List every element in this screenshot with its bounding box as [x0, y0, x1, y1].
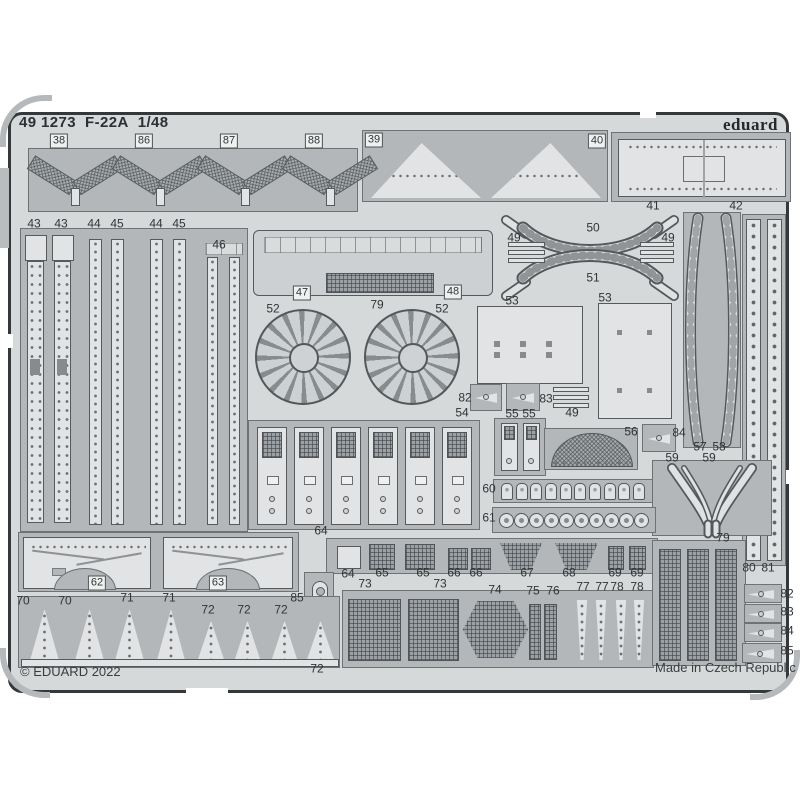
rivet-row — [627, 186, 777, 192]
part-label-84: 84 — [672, 427, 685, 440]
photoetch-sheet-photo: 49 1273F-22A1/48 eduard © EDUARD 2022 Ma… — [0, 0, 800, 800]
part-label-60: 60 — [482, 483, 495, 496]
rivet-row — [170, 544, 288, 550]
part-75-strip — [529, 604, 541, 660]
part-46-strip — [207, 257, 218, 525]
rivet-row — [30, 544, 146, 550]
hook-part-60 — [589, 483, 601, 500]
slat-mesh — [410, 432, 430, 458]
part-label-70: 70 — [58, 595, 71, 608]
part-label-72: 72 — [274, 604, 287, 617]
plate-slot — [546, 341, 552, 347]
part-label-69: 69 — [608, 567, 621, 580]
rivet — [417, 496, 423, 502]
part-label-40: 40 — [588, 134, 606, 149]
panel-55 — [494, 418, 546, 476]
part-label-56: 56 — [624, 426, 637, 439]
part-label-65: 65 — [416, 567, 429, 580]
v-part-shape — [31, 152, 119, 208]
part-label-70: 70 — [16, 595, 29, 608]
v-arm — [112, 155, 163, 195]
part-label-69: 69 — [630, 567, 643, 580]
strip-slot — [30, 359, 40, 375]
part-label-83: 83 — [780, 606, 793, 619]
v-arm — [197, 155, 248, 195]
blade-part-77-78 — [613, 600, 629, 660]
cone-eyelet — [656, 435, 662, 441]
part-label-80: 80 — [742, 562, 755, 575]
ring-part-61 — [574, 513, 589, 528]
sheet-edge-gap — [785, 470, 794, 484]
hook-part-60 — [574, 483, 586, 500]
rivet — [417, 508, 423, 514]
part-label-38: 38 — [50, 134, 68, 149]
blades-57-58 — [683, 212, 741, 448]
v-arm — [27, 155, 78, 195]
hook-part-60 — [501, 483, 513, 500]
plate-slot — [617, 388, 622, 393]
part-label-44: 44 — [149, 218, 162, 231]
slat-mesh — [447, 432, 467, 458]
mesh-top — [504, 426, 515, 440]
v-part-shape — [286, 152, 374, 208]
part-43-pad — [52, 235, 74, 261]
box-part-83 — [744, 604, 782, 623]
triangle-part — [194, 620, 228, 659]
slat-window — [378, 476, 390, 485]
catalog-number: 49 1273 — [19, 114, 76, 131]
part-44-strip — [89, 239, 102, 525]
part-label-72: 72 — [237, 604, 250, 617]
rivet-row — [553, 460, 631, 466]
part-label-79: 79 — [370, 299, 383, 312]
part-label-59: 59 — [665, 452, 678, 465]
part-41-42-frame — [611, 132, 791, 202]
ring-part-61 — [514, 513, 529, 528]
box-part-82 — [744, 584, 782, 603]
slat-window — [452, 476, 464, 485]
rivet — [269, 508, 275, 514]
panel-73-78 — [342, 590, 654, 668]
mesh-strip-79 — [659, 549, 681, 661]
part-49-bar — [553, 395, 589, 400]
mesh-strip-79 — [715, 549, 737, 661]
handle-ring — [316, 587, 325, 596]
v-arm — [282, 155, 333, 195]
fan-hub — [398, 343, 428, 373]
v-stem — [326, 188, 335, 206]
mesh-strip-79 — [326, 273, 434, 293]
fan-part-52 — [364, 309, 460, 405]
part-53-plate — [477, 306, 583, 384]
part-49-bar — [640, 258, 674, 263]
part-label-86: 86 — [135, 134, 153, 149]
part-43-strip — [27, 261, 44, 523]
plate-slot — [617, 330, 622, 335]
rivet-row — [503, 173, 591, 179]
part-49-bar — [508, 258, 545, 263]
part-label-87: 87 — [220, 134, 238, 149]
part-label-45: 45 — [110, 218, 123, 231]
fan-part-52 — [255, 309, 351, 405]
cone-eyelet — [483, 394, 489, 400]
part-label-75: 75 — [526, 585, 539, 598]
part-43-pad — [25, 235, 47, 261]
blade-part-77-78 — [574, 600, 590, 660]
ring-part-61 — [544, 513, 559, 528]
blade-part-77-78 — [631, 600, 647, 660]
ring-part-61 — [499, 513, 514, 528]
triangle-part — [111, 608, 148, 659]
part-label-88: 88 — [305, 134, 323, 149]
slat-mesh — [373, 432, 393, 458]
web-line — [76, 552, 141, 565]
part-label-43: 43 — [54, 218, 67, 231]
part-label-82: 82 — [458, 392, 471, 405]
part-label-39: 39 — [365, 133, 383, 148]
part-label-52: 52 — [435, 303, 448, 316]
rivet — [454, 508, 460, 514]
part-label-49: 49 — [661, 232, 674, 245]
part-53-plate — [598, 303, 672, 419]
part-41-42-shape — [618, 139, 786, 197]
part-label-78: 78 — [630, 581, 643, 594]
part-55-shape — [501, 423, 518, 471]
part-label-46: 46 — [212, 239, 225, 252]
part-44-strip — [150, 239, 163, 525]
part-43-strip — [54, 261, 71, 523]
rivet — [380, 508, 386, 514]
hook-part-60 — [545, 483, 557, 500]
ring-part-61 — [634, 513, 649, 528]
box-part-82 — [470, 384, 502, 411]
part-label-71: 71 — [162, 592, 175, 605]
part-label-84: 84 — [780, 625, 793, 638]
sheet-title: 49 1273F-22A1/48 — [19, 114, 178, 131]
part-49-bar — [640, 250, 674, 255]
part-55-shape — [523, 423, 540, 471]
part-label-78: 78 — [610, 581, 623, 594]
ring-part-61 — [604, 513, 619, 528]
mesh-top — [526, 426, 537, 440]
rivet — [506, 458, 512, 464]
rivet — [306, 508, 312, 514]
part-39-40-frame — [362, 130, 608, 202]
rivet-row — [627, 144, 777, 150]
part-label-51: 51 — [586, 272, 599, 285]
panel-strips-43-46 — [20, 228, 248, 532]
part-label-45: 45 — [172, 218, 185, 231]
part-label-63: 63 — [209, 576, 227, 591]
web-line — [218, 552, 283, 565]
part-label-62: 62 — [88, 576, 106, 591]
cone-eyelet — [758, 591, 764, 597]
ring-part-61 — [589, 513, 604, 528]
part-40-shape — [491, 143, 601, 198]
part-label-77: 77 — [576, 581, 589, 594]
scale: 1/48 — [138, 114, 169, 131]
plate-slot — [520, 341, 526, 347]
wishbone-parts-59 — [660, 462, 764, 536]
hook-part-60 — [618, 483, 630, 500]
rivet — [269, 496, 275, 502]
plate-slot — [494, 341, 500, 347]
slat-window — [415, 476, 427, 485]
part-label-43: 43 — [27, 218, 40, 231]
mesh-strip-79 — [687, 549, 709, 661]
panel-strips-79 — [652, 540, 746, 666]
rivet — [343, 508, 349, 514]
part-label-64: 64 — [314, 525, 327, 538]
slat-part-64 — [331, 427, 361, 525]
triangle-part — [153, 608, 189, 659]
part-label-66: 66 — [469, 567, 482, 580]
hook-part-60 — [604, 483, 616, 500]
part-label-83: 83 — [539, 393, 552, 406]
v-stem — [241, 188, 250, 206]
web-line — [172, 550, 244, 561]
hook-part-60 — [560, 483, 572, 500]
rivet — [343, 496, 349, 502]
kit-name: F-22A — [85, 114, 129, 131]
slat-part-64 — [442, 427, 472, 525]
part-76-strip — [544, 604, 557, 660]
triangle-part — [26, 608, 63, 659]
part-label-76: 76 — [546, 585, 559, 598]
part-label-48: 48 — [444, 285, 462, 300]
part-label-53: 53 — [598, 292, 611, 305]
copyright-text: © EDUARD 2022 — [20, 664, 121, 679]
row-61-parts — [492, 507, 656, 533]
part-73-mesh — [408, 599, 459, 661]
part-label-72: 72 — [310, 663, 323, 676]
slat-window — [267, 476, 279, 485]
part-label-47: 47 — [293, 286, 311, 301]
cone-eyelet — [758, 630, 764, 636]
rivet — [380, 496, 386, 502]
part-label-66: 66 — [447, 567, 460, 580]
rivet-row — [383, 173, 471, 179]
rivet — [306, 496, 312, 502]
part-label-59: 59 — [702, 452, 715, 465]
part-label-73: 73 — [433, 578, 446, 591]
part-73-mesh — [348, 599, 401, 661]
slat-window — [304, 476, 316, 485]
part-label-52: 52 — [266, 303, 279, 316]
triangle-part — [268, 620, 301, 659]
part-label-53: 53 — [505, 295, 518, 308]
part-label-71: 71 — [120, 592, 133, 605]
part-74-hexagon — [463, 601, 528, 658]
part-46-strip — [229, 257, 240, 525]
dome-cutout — [196, 568, 260, 590]
triangle-part — [71, 608, 108, 659]
part-63-shape — [163, 537, 293, 589]
sheet-edge-tab — [0, 168, 9, 248]
part-label-72: 72 — [201, 604, 214, 617]
part-label-44: 44 — [87, 218, 100, 231]
cone-eyelet — [757, 651, 763, 657]
part-45-strip — [111, 239, 124, 525]
cone-eyelet — [520, 394, 526, 400]
brand-logo: eduard — [723, 115, 778, 135]
part-label-79: 79 — [716, 532, 729, 545]
sheet-edge-gap — [640, 109, 656, 118]
ring-part-61 — [619, 513, 634, 528]
sheet-edge-gap — [4, 334, 13, 348]
row-60-parts — [493, 479, 653, 503]
slat-part-64 — [405, 427, 435, 525]
part-label-42: 42 — [729, 200, 742, 213]
slat-window — [341, 476, 353, 485]
lattice-band — [264, 237, 482, 253]
hook-part-60 — [530, 483, 542, 500]
web-line — [32, 550, 104, 561]
hook-part-60 — [633, 483, 645, 500]
slat-part-64 — [257, 427, 287, 525]
part-label-73: 73 — [358, 578, 371, 591]
part-label-68: 68 — [562, 567, 575, 580]
plate-slot — [520, 352, 526, 358]
ring-part-61 — [529, 513, 544, 528]
triangle-part — [231, 620, 264, 659]
part-label-50: 50 — [586, 222, 599, 235]
panel-62-63-frame — [18, 532, 299, 592]
ring-part-61 — [559, 513, 574, 528]
slat-mesh — [262, 432, 282, 458]
box-part-84 — [744, 623, 782, 642]
cone-eyelet — [758, 611, 764, 617]
part-label-49: 49 — [507, 232, 520, 245]
hook-part-60 — [516, 483, 528, 500]
slat-part-64 — [294, 427, 324, 525]
part-label-82: 82 — [780, 588, 793, 601]
slat-mesh — [299, 432, 319, 458]
plate-slot — [546, 352, 552, 358]
panel-slats-64 — [248, 420, 480, 530]
part-label-81: 81 — [761, 562, 774, 575]
plate-slot — [647, 388, 652, 393]
slat-part-64 — [368, 427, 398, 525]
rivet — [454, 496, 460, 502]
part-39-shape — [371, 143, 481, 198]
part-label-77: 77 — [595, 581, 608, 594]
fan-hub — [289, 343, 319, 373]
part-label-61: 61 — [482, 512, 495, 525]
part-label-85: 85 — [290, 592, 303, 605]
part-49-bar — [553, 387, 589, 392]
part-label-41: 41 — [646, 200, 659, 213]
rivet — [528, 458, 534, 464]
part-label-65: 65 — [375, 567, 388, 580]
part-label-55: 55 — [522, 408, 535, 421]
part-label-49: 49 — [565, 407, 578, 420]
v-stem — [156, 188, 165, 206]
triangle-part — [303, 620, 338, 659]
box-part-84 — [642, 424, 676, 452]
made-in-text: Made in Czech Republic — [655, 660, 796, 675]
slat-mesh — [336, 432, 356, 458]
strip-slot — [57, 359, 67, 375]
part-45-strip — [173, 239, 186, 525]
blade-part-77-78 — [593, 600, 609, 660]
plate-slot — [494, 352, 500, 358]
v-part-shape — [201, 152, 289, 208]
part-label-74: 74 — [488, 584, 501, 597]
part-label-54: 54 — [455, 407, 468, 420]
sheet-edge-gap — [186, 688, 228, 697]
v-part-shape — [116, 152, 204, 208]
part-49-bar — [508, 250, 545, 255]
part-label-67: 67 — [520, 567, 533, 580]
part-label-64: 64 — [341, 568, 354, 581]
part-label-55: 55 — [505, 408, 518, 421]
v-stem — [71, 188, 80, 206]
plate-slot — [647, 330, 652, 335]
part-68-trapezoid — [551, 543, 602, 570]
part-label-85: 85 — [780, 645, 793, 658]
part-divider — [703, 140, 705, 198]
